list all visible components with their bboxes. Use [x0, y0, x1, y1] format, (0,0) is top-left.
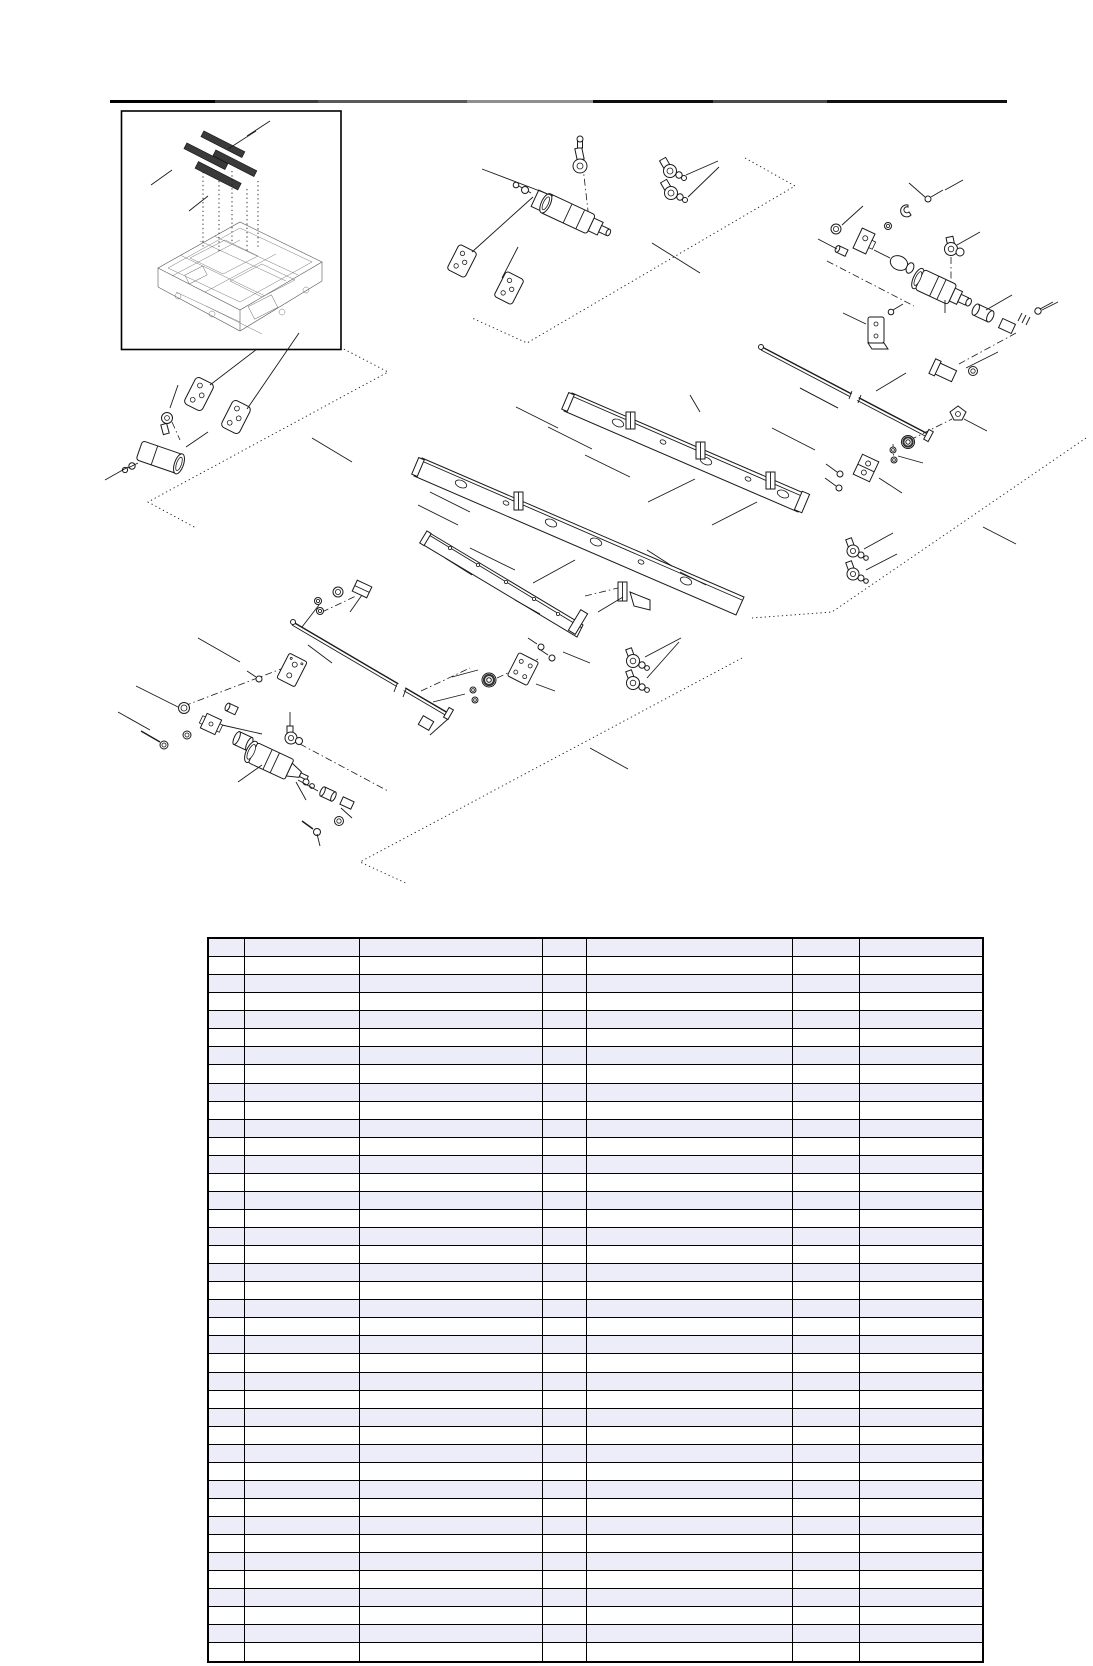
- pneumatic-cylinder-right: [909, 232, 1058, 333]
- parts-table-cell: [244, 1047, 359, 1065]
- parts-table-cell: [542, 1246, 586, 1264]
- parts-table-cell: [792, 1372, 859, 1390]
- parts-table-cell: [359, 1372, 542, 1390]
- parts-table-cell: [542, 1101, 586, 1119]
- parts-table-cell: [859, 1191, 983, 1209]
- parts-table-cell: [359, 1228, 542, 1246]
- parts-table-cell: [542, 938, 586, 957]
- parts-table-cell: [244, 1372, 359, 1390]
- parts-table-cell: [859, 1517, 983, 1535]
- parts-table-cell: [244, 1444, 359, 1462]
- parts-table-cell: [208, 1318, 244, 1336]
- parts-table-cell: [244, 957, 359, 975]
- parts-table-cell: [359, 938, 542, 957]
- valve-block: [198, 712, 225, 736]
- parts-table-cell: [208, 1390, 244, 1408]
- parts-table-row: [208, 1119, 983, 1137]
- parts-table-cell: [244, 1264, 359, 1282]
- parts-table-cell: [586, 1282, 792, 1300]
- parts-table-cell: [208, 1173, 244, 1191]
- elbow-fitting-pair-top: [660, 157, 719, 202]
- parts-table-cell: [586, 1643, 792, 1662]
- parts-table-cell: [359, 1589, 542, 1607]
- parts-table-cell: [586, 1029, 792, 1047]
- parts-table-cell: [359, 1083, 542, 1101]
- parts-table-cell: [586, 1047, 792, 1065]
- parts-table-row: [208, 1083, 983, 1101]
- parts-table-cell: [792, 1571, 859, 1589]
- parts-table-cell: [859, 1354, 983, 1372]
- header-rule-segment: [467, 100, 593, 103]
- parts-table-cell: [208, 1209, 244, 1227]
- parts-table-cell: [859, 1372, 983, 1390]
- parts-table-cell: [859, 938, 983, 957]
- parts-table-cell: [208, 1047, 244, 1065]
- parts-table-cell: [542, 1571, 586, 1589]
- parts-table-cell: [542, 1011, 586, 1029]
- parts-table-cell: [208, 1462, 244, 1480]
- parts-table-cell: [859, 1589, 983, 1607]
- parts-table-cell: [586, 1444, 792, 1462]
- header-rule-segment: [713, 100, 827, 103]
- parts-table-cell: [208, 1191, 244, 1209]
- parts-table-cell: [792, 1354, 859, 1372]
- parts-table-cell: [792, 1318, 859, 1336]
- parts-table-row: [208, 1553, 983, 1571]
- parts-table-cell: [586, 1137, 792, 1155]
- parts-table-cell: [542, 1462, 586, 1480]
- parts-table-row: [208, 1372, 983, 1390]
- parts-table-cell: [792, 1282, 859, 1300]
- parts-table-cell: [359, 957, 542, 975]
- parts-table-cell: [542, 1336, 586, 1354]
- parts-table-row: [208, 1047, 983, 1065]
- parts-table-cell: [586, 1553, 792, 1571]
- parts-table-cell: [244, 1318, 359, 1336]
- parts-table-cell: [792, 1625, 859, 1643]
- parts-table-cell: [208, 1246, 244, 1264]
- right-bracket-group: [843, 304, 998, 391]
- parts-table-cell: [792, 1553, 859, 1571]
- parts-table-cell: [586, 1480, 792, 1498]
- header-rule-segment: [110, 100, 215, 103]
- parts-table-cell: [208, 1444, 244, 1462]
- parts-table-cell: [792, 1191, 859, 1209]
- parts-table-cell: [792, 1426, 859, 1444]
- parts-table-cell: [208, 1553, 244, 1571]
- parts-table-cell: [542, 1535, 586, 1553]
- parts-table-cell: [586, 1426, 792, 1444]
- parts-table-cell: [244, 1426, 359, 1444]
- pneumatic-cylinder-top: [482, 136, 615, 243]
- parts-table-cell: [586, 1119, 792, 1137]
- parts-table-cell: [244, 1191, 359, 1209]
- parts-table-header-row: [208, 938, 983, 957]
- parts-table-cell: [859, 1643, 983, 1662]
- parts-table-cell: [586, 1408, 792, 1426]
- parts-table-row: [208, 1191, 983, 1209]
- parts-table-cell: [792, 1119, 859, 1137]
- parts-table-cell: [542, 1155, 586, 1173]
- parts-table-cell: [859, 1625, 983, 1643]
- parts-table-cell: [859, 1535, 983, 1553]
- parts-table-cell: [859, 1318, 983, 1336]
- parts-table-cell: [542, 1029, 586, 1047]
- parts-table-cell: [586, 1625, 792, 1643]
- parts-table-cell: [586, 975, 792, 993]
- parts-table-cell: [359, 1426, 542, 1444]
- parts-table-row: [208, 957, 983, 975]
- parts-table-cell: [359, 1571, 542, 1589]
- parts-table-row: [208, 975, 983, 993]
- parts-table-cell: [586, 1191, 792, 1209]
- rod-upper: [759, 345, 988, 464]
- parts-table-cell: [859, 1083, 983, 1101]
- parts-table-cell: [859, 1065, 983, 1083]
- parts-table-cell: [792, 1029, 859, 1047]
- parts-table-cell: [359, 1607, 542, 1625]
- parts-table-cell: [359, 1462, 542, 1480]
- rail-upper: [516, 388, 838, 525]
- parts-table-cell: [859, 1426, 983, 1444]
- parts-table-cell: [244, 1625, 359, 1643]
- parts-table-cell: [792, 1083, 859, 1101]
- parts-table-cell: [542, 1119, 586, 1137]
- parts-table-row: [208, 1498, 983, 1516]
- parts-table-row: [208, 1173, 983, 1191]
- bottom-hardware: [298, 780, 354, 846]
- parts-table-cell: [208, 1083, 244, 1101]
- parts-table-cell: [542, 1318, 586, 1336]
- parts-table-cell: [586, 1318, 792, 1336]
- parts-table-cell: [208, 1571, 244, 1589]
- parts-table-cell: [792, 1390, 859, 1408]
- parts-table-cell: [244, 1246, 359, 1264]
- parts-table-cell: [586, 1517, 792, 1535]
- parts-table-cell: [359, 1119, 542, 1137]
- parts-table-cell: [244, 1571, 359, 1589]
- parts-table-cell: [208, 1607, 244, 1625]
- parts-table-cell: [542, 957, 586, 975]
- parts-table-cell: [208, 1101, 244, 1119]
- parts-table-cell: [208, 1408, 244, 1426]
- parts-table-cell: [244, 1480, 359, 1498]
- parts-table-row: [208, 1209, 983, 1227]
- parts-table-cell: [792, 1643, 859, 1662]
- parts-table-cell: [586, 1300, 792, 1318]
- parts-table-cell: [792, 1101, 859, 1119]
- parts-table-cell: [586, 1209, 792, 1227]
- parts-table-cell: [859, 1228, 983, 1246]
- parts-table-cell: [359, 993, 542, 1011]
- parts-table-cell: [244, 1155, 359, 1173]
- parts-table-cell: [208, 1354, 244, 1372]
- parts-table-cell: [859, 1209, 983, 1227]
- rod-lower: [291, 620, 454, 736]
- parts-table-cell: [244, 1390, 359, 1408]
- parts-table-cell: [359, 1553, 542, 1571]
- parts-table-cell: [542, 1390, 586, 1408]
- parts-table-cell: [208, 1119, 244, 1137]
- parts-table-cell: [359, 1625, 542, 1643]
- region-leader-lines: [312, 243, 1016, 769]
- parts-table-row: [208, 1354, 983, 1372]
- parts-table-cell: [542, 1643, 586, 1662]
- parts-table-cell: [244, 1535, 359, 1553]
- parts-table-cell: [586, 1336, 792, 1354]
- parts-table-cell: [244, 1173, 359, 1191]
- parts-table-cell: [859, 1444, 983, 1462]
- parts-table-cell: [208, 993, 244, 1011]
- plate-two-hole: [277, 653, 308, 687]
- parts-table-cell: [244, 1354, 359, 1372]
- parts-table-cell: [542, 1444, 586, 1462]
- parts-table-cell: [792, 1264, 859, 1282]
- parts-table-cell: [792, 993, 859, 1011]
- parts-table-cell: [792, 1589, 859, 1607]
- parts-table-row: [208, 1517, 983, 1535]
- parts-table-cell: [542, 1065, 586, 1083]
- parts-table-cell: [859, 1173, 983, 1191]
- parts-table-cell: [586, 1228, 792, 1246]
- parts-table-cell: [359, 1065, 542, 1083]
- parts-table-cell: [208, 957, 244, 975]
- parts-table-row: [208, 1444, 983, 1462]
- parts-table-cell: [859, 957, 983, 975]
- parts-table-cell: [359, 975, 542, 993]
- parts-table-cell: [859, 1264, 983, 1282]
- parts-table-row: [208, 1390, 983, 1408]
- parts-table-cell: [359, 1535, 542, 1553]
- parts-table-cell: [359, 1498, 542, 1516]
- parts-table-cell: [542, 1354, 586, 1372]
- parts-table-cell: [244, 1498, 359, 1516]
- parts-table-cell: [208, 1065, 244, 1083]
- parts-table-cell: [859, 1462, 983, 1480]
- parts-table-cell: [359, 1390, 542, 1408]
- parts-table-cell: [859, 1029, 983, 1047]
- elbow-fitting: [573, 136, 587, 173]
- parts-table-row: [208, 1246, 983, 1264]
- elbow-fitting-pair-bottom: [626, 638, 681, 692]
- parts-table-cell: [792, 975, 859, 993]
- parts-table-cell: [359, 1336, 542, 1354]
- parts-table-cell: [542, 1517, 586, 1535]
- parts-table-cell: [208, 1517, 244, 1535]
- parts-table-cell: [586, 1535, 792, 1553]
- header-rule-segment: [215, 100, 318, 103]
- center-bottom-cluster: [433, 638, 590, 703]
- parts-table-row: [208, 1155, 983, 1173]
- parts-table-cell: [859, 993, 983, 1011]
- parts-table-cell: [244, 1029, 359, 1047]
- parts-table-cell: [542, 1553, 586, 1571]
- parts-table-cell: [542, 1498, 586, 1516]
- parts-table-cell: [859, 1101, 983, 1119]
- parts-table-cell: [586, 1173, 792, 1191]
- rail-middle: [412, 458, 744, 615]
- parts-table-cell: [359, 1408, 542, 1426]
- parts-table-cell: [208, 1589, 244, 1607]
- parts-table-row: [208, 1011, 983, 1029]
- parts-table-row: [208, 1462, 983, 1480]
- parts-table-cell: [792, 1408, 859, 1426]
- parts-table-cell: [792, 1480, 859, 1498]
- parts-table-cell: [542, 1047, 586, 1065]
- parts-table-cell: [859, 1553, 983, 1571]
- parts-table-cell: [359, 1444, 542, 1462]
- parts-table-cell: [208, 1155, 244, 1173]
- parts-table-cell: [359, 1282, 542, 1300]
- parts-table-cell: [859, 1480, 983, 1498]
- parts-table-cell: [586, 1101, 792, 1119]
- parts-table-cell: [359, 1300, 542, 1318]
- parts-table-cell: [792, 1137, 859, 1155]
- parts-table-cell: [586, 1571, 792, 1589]
- parts-table-cell: [244, 1517, 359, 1535]
- parts-table-cell: [586, 1390, 792, 1408]
- parts-table-cell: [542, 1228, 586, 1246]
- parts-table-cell: [359, 1318, 542, 1336]
- parts-table-cell: [792, 1498, 859, 1516]
- parts-table-cell: [359, 1264, 542, 1282]
- header-rule-segment: [318, 100, 467, 103]
- parts-table-cell: [792, 1011, 859, 1029]
- elbow-fitting: [285, 712, 303, 745]
- parts-table-cell: [859, 1246, 983, 1264]
- parts-table-cell: [542, 1173, 586, 1191]
- lower-left-cluster: [118, 580, 372, 751]
- parts-table-cell: [208, 1029, 244, 1047]
- parts-table-cell: [359, 1480, 542, 1498]
- header-rule-segment: [593, 100, 713, 103]
- parts-table-cell: [792, 1047, 859, 1065]
- parts-table-cell: [859, 1336, 983, 1354]
- parts-table-cell: [859, 1607, 983, 1625]
- parts-table-cell: [859, 1047, 983, 1065]
- parts-table-cell: [359, 1209, 542, 1227]
- parts-table-cell: [359, 1173, 542, 1191]
- parts-table-cell: [208, 938, 244, 957]
- parts-table-cell: [244, 1137, 359, 1155]
- parts-table-cell: [542, 1191, 586, 1209]
- parts-table-cell: [542, 1083, 586, 1101]
- parts-table-cell: [859, 1137, 983, 1155]
- parts-table-cell: [586, 993, 792, 1011]
- parts-table-row: [208, 1643, 983, 1662]
- parts-table-cell: [792, 1228, 859, 1246]
- parts-table-cell: [792, 1173, 859, 1191]
- parts-table-cell: [359, 1246, 542, 1264]
- parts-table-row: [208, 1065, 983, 1083]
- parts-table-row: [208, 1228, 983, 1246]
- parts-table-cell: [244, 1589, 359, 1607]
- parts-table-cell: [859, 1571, 983, 1589]
- parts-table-cell: [208, 1535, 244, 1553]
- parts-table-cell: [792, 1246, 859, 1264]
- parts-table-cell: [208, 1137, 244, 1155]
- parts-table-cell: [792, 1209, 859, 1227]
- parts-table-cell: [586, 1589, 792, 1607]
- parts-table-cell: [586, 1246, 792, 1264]
- parts-table-cell: [208, 1625, 244, 1643]
- parts-table-cell: [586, 1264, 792, 1282]
- parts-table-cell: [542, 1282, 586, 1300]
- catalog-page: [0, 0, 1093, 1666]
- parts-table-cell: [244, 1209, 359, 1227]
- parts-table-cell: [244, 1300, 359, 1318]
- parts-table-cell: [859, 1300, 983, 1318]
- parts-table-row: [208, 993, 983, 1011]
- parts-table-cell: [208, 975, 244, 993]
- parts-table-row: [208, 1589, 983, 1607]
- parts-table-cell: [792, 1607, 859, 1625]
- parts-table-cell: [586, 1498, 792, 1516]
- parts-table-cell: [542, 975, 586, 993]
- parts-table-row: [208, 1625, 983, 1643]
- parts-table-cell: [244, 1607, 359, 1625]
- parts-table-cell: [859, 975, 983, 993]
- parts-table-row: [208, 1408, 983, 1426]
- parts-table-cell: [542, 1625, 586, 1643]
- parts-table-cell: [792, 1535, 859, 1553]
- parts-table-row: [208, 1535, 983, 1553]
- elbow-fitting: [945, 236, 965, 256]
- parts-table-cell: [792, 1517, 859, 1535]
- parts-table-cell: [859, 1390, 983, 1408]
- plate-four-hole: [507, 652, 538, 685]
- parts-table-cell: [244, 993, 359, 1011]
- parts-table-cell: [859, 1498, 983, 1516]
- parts-table-cell: [359, 1101, 542, 1119]
- parts-table-cell: [542, 1137, 586, 1155]
- parts-table-cell: [859, 1011, 983, 1029]
- parts-table-cell: [792, 1300, 859, 1318]
- parts-table-cell: [542, 1209, 586, 1227]
- parts-table-cell: [244, 938, 359, 957]
- parts-table-cell: [244, 1336, 359, 1354]
- parts-table-cell: [542, 1480, 586, 1498]
- parts-table-cell: [359, 1137, 542, 1155]
- pneumatic-cylinder-lower: [238, 712, 314, 800]
- parts-table-cell: [542, 1372, 586, 1390]
- parts-table-cell: [792, 1444, 859, 1462]
- parts-table-cell: [359, 1354, 542, 1372]
- parts-table-row: [208, 1426, 983, 1444]
- parts-table-cell: [359, 1517, 542, 1535]
- parts-table-cell: [586, 957, 792, 975]
- parts-table-row: [208, 1607, 983, 1625]
- parts-table-cell: [359, 1029, 542, 1047]
- parts-table-cell: [859, 1408, 983, 1426]
- parts-table-cell: [359, 1643, 542, 1662]
- right-top-cluster: [818, 180, 963, 274]
- parts-table-cell: [208, 1300, 244, 1318]
- parts-table-cell: [244, 1119, 359, 1137]
- parts-table-cell: [859, 1119, 983, 1137]
- parts-table-row: [208, 1264, 983, 1282]
- parts-table-cell: [208, 1372, 244, 1390]
- parts-table-row: [208, 1300, 983, 1318]
- parts-table-cell: [792, 1065, 859, 1083]
- parts-table-cell: [244, 1408, 359, 1426]
- parts-table-cell: [244, 1083, 359, 1101]
- parts-table: [207, 937, 984, 1663]
- parts-table-cell: [586, 1607, 792, 1625]
- parts-table-cell: [208, 1498, 244, 1516]
- parts-table-cell: [208, 1264, 244, 1282]
- parts-table-cell: [208, 1336, 244, 1354]
